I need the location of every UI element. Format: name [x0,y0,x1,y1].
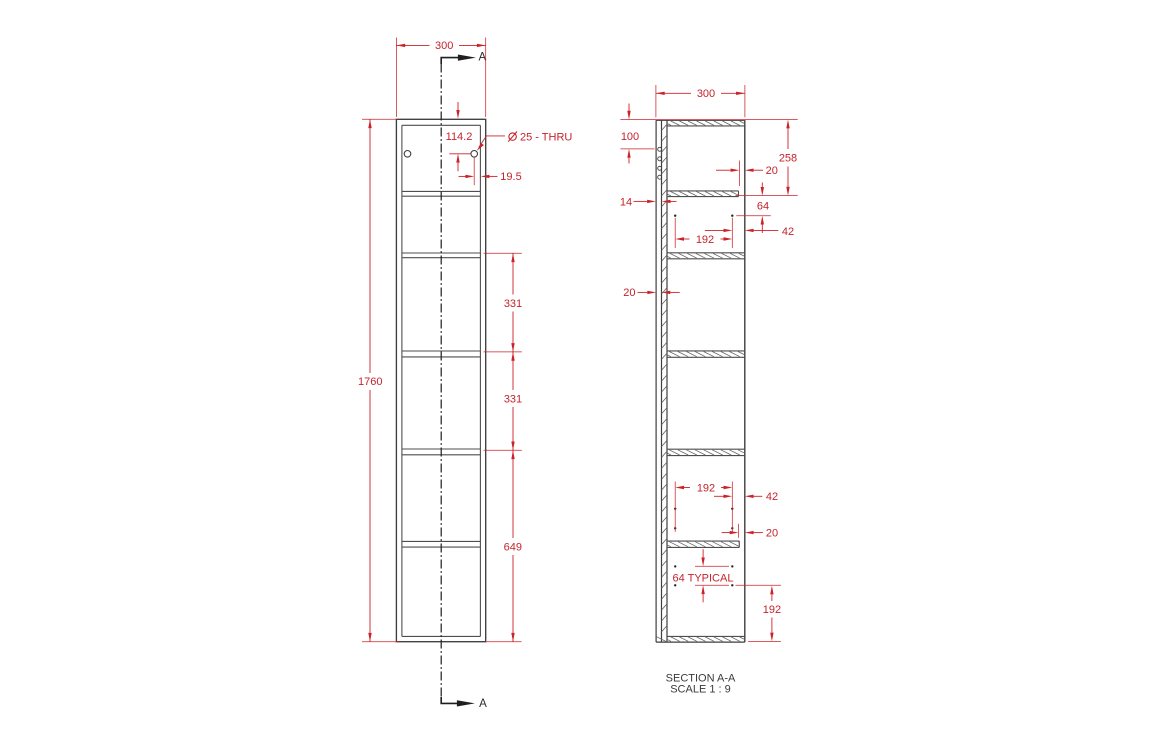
svg-text:331: 331 [504,298,522,310]
svg-text:A: A [479,698,487,710]
svg-text:25 - THRU: 25 - THRU [520,131,572,143]
svg-text:SCALE 1 : 9: SCALE 1 : 9 [670,684,731,696]
svg-text:20: 20 [766,165,778,177]
svg-text:114.2: 114.2 [446,131,473,143]
svg-text:A: A [478,51,486,63]
svg-text:192: 192 [763,604,781,616]
svg-text:42: 42 [766,491,778,503]
svg-text:649: 649 [504,541,522,553]
svg-text:20: 20 [623,287,635,299]
svg-text:331: 331 [504,393,522,405]
svg-text:300: 300 [697,88,715,100]
svg-text:20: 20 [766,527,778,539]
svg-text:64 TYPICAL: 64 TYPICAL [673,572,734,584]
svg-text:64: 64 [757,201,769,213]
svg-text:192: 192 [697,482,715,494]
svg-text:42: 42 [782,226,794,238]
svg-text:1760: 1760 [358,376,382,388]
svg-text:258: 258 [779,153,797,165]
svg-text:19.5: 19.5 [500,171,521,183]
svg-text:100: 100 [621,131,639,143]
svg-text:14: 14 [620,196,632,208]
svg-text:192: 192 [696,234,714,246]
svg-text:300: 300 [435,40,453,52]
